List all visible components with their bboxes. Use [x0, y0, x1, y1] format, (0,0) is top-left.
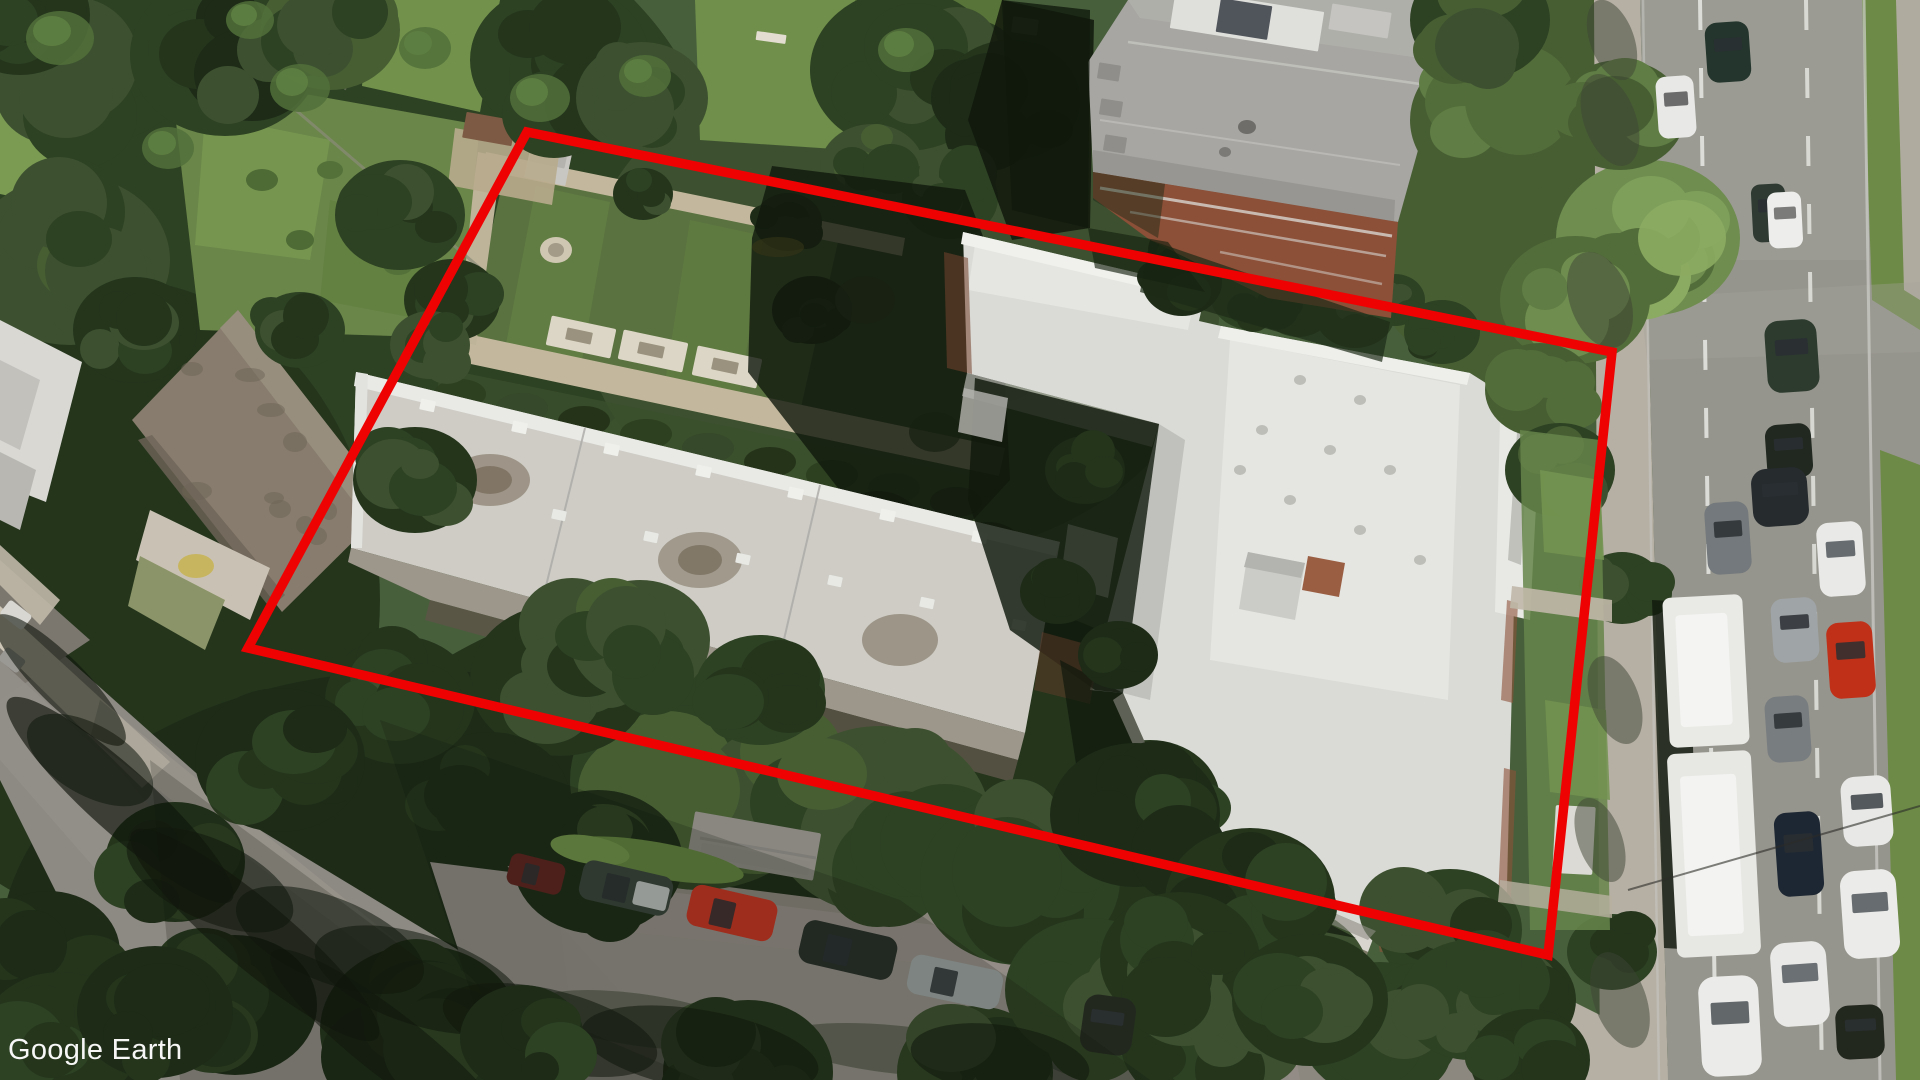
- svg-text:Google Earth: Google Earth: [8, 1034, 183, 1066]
